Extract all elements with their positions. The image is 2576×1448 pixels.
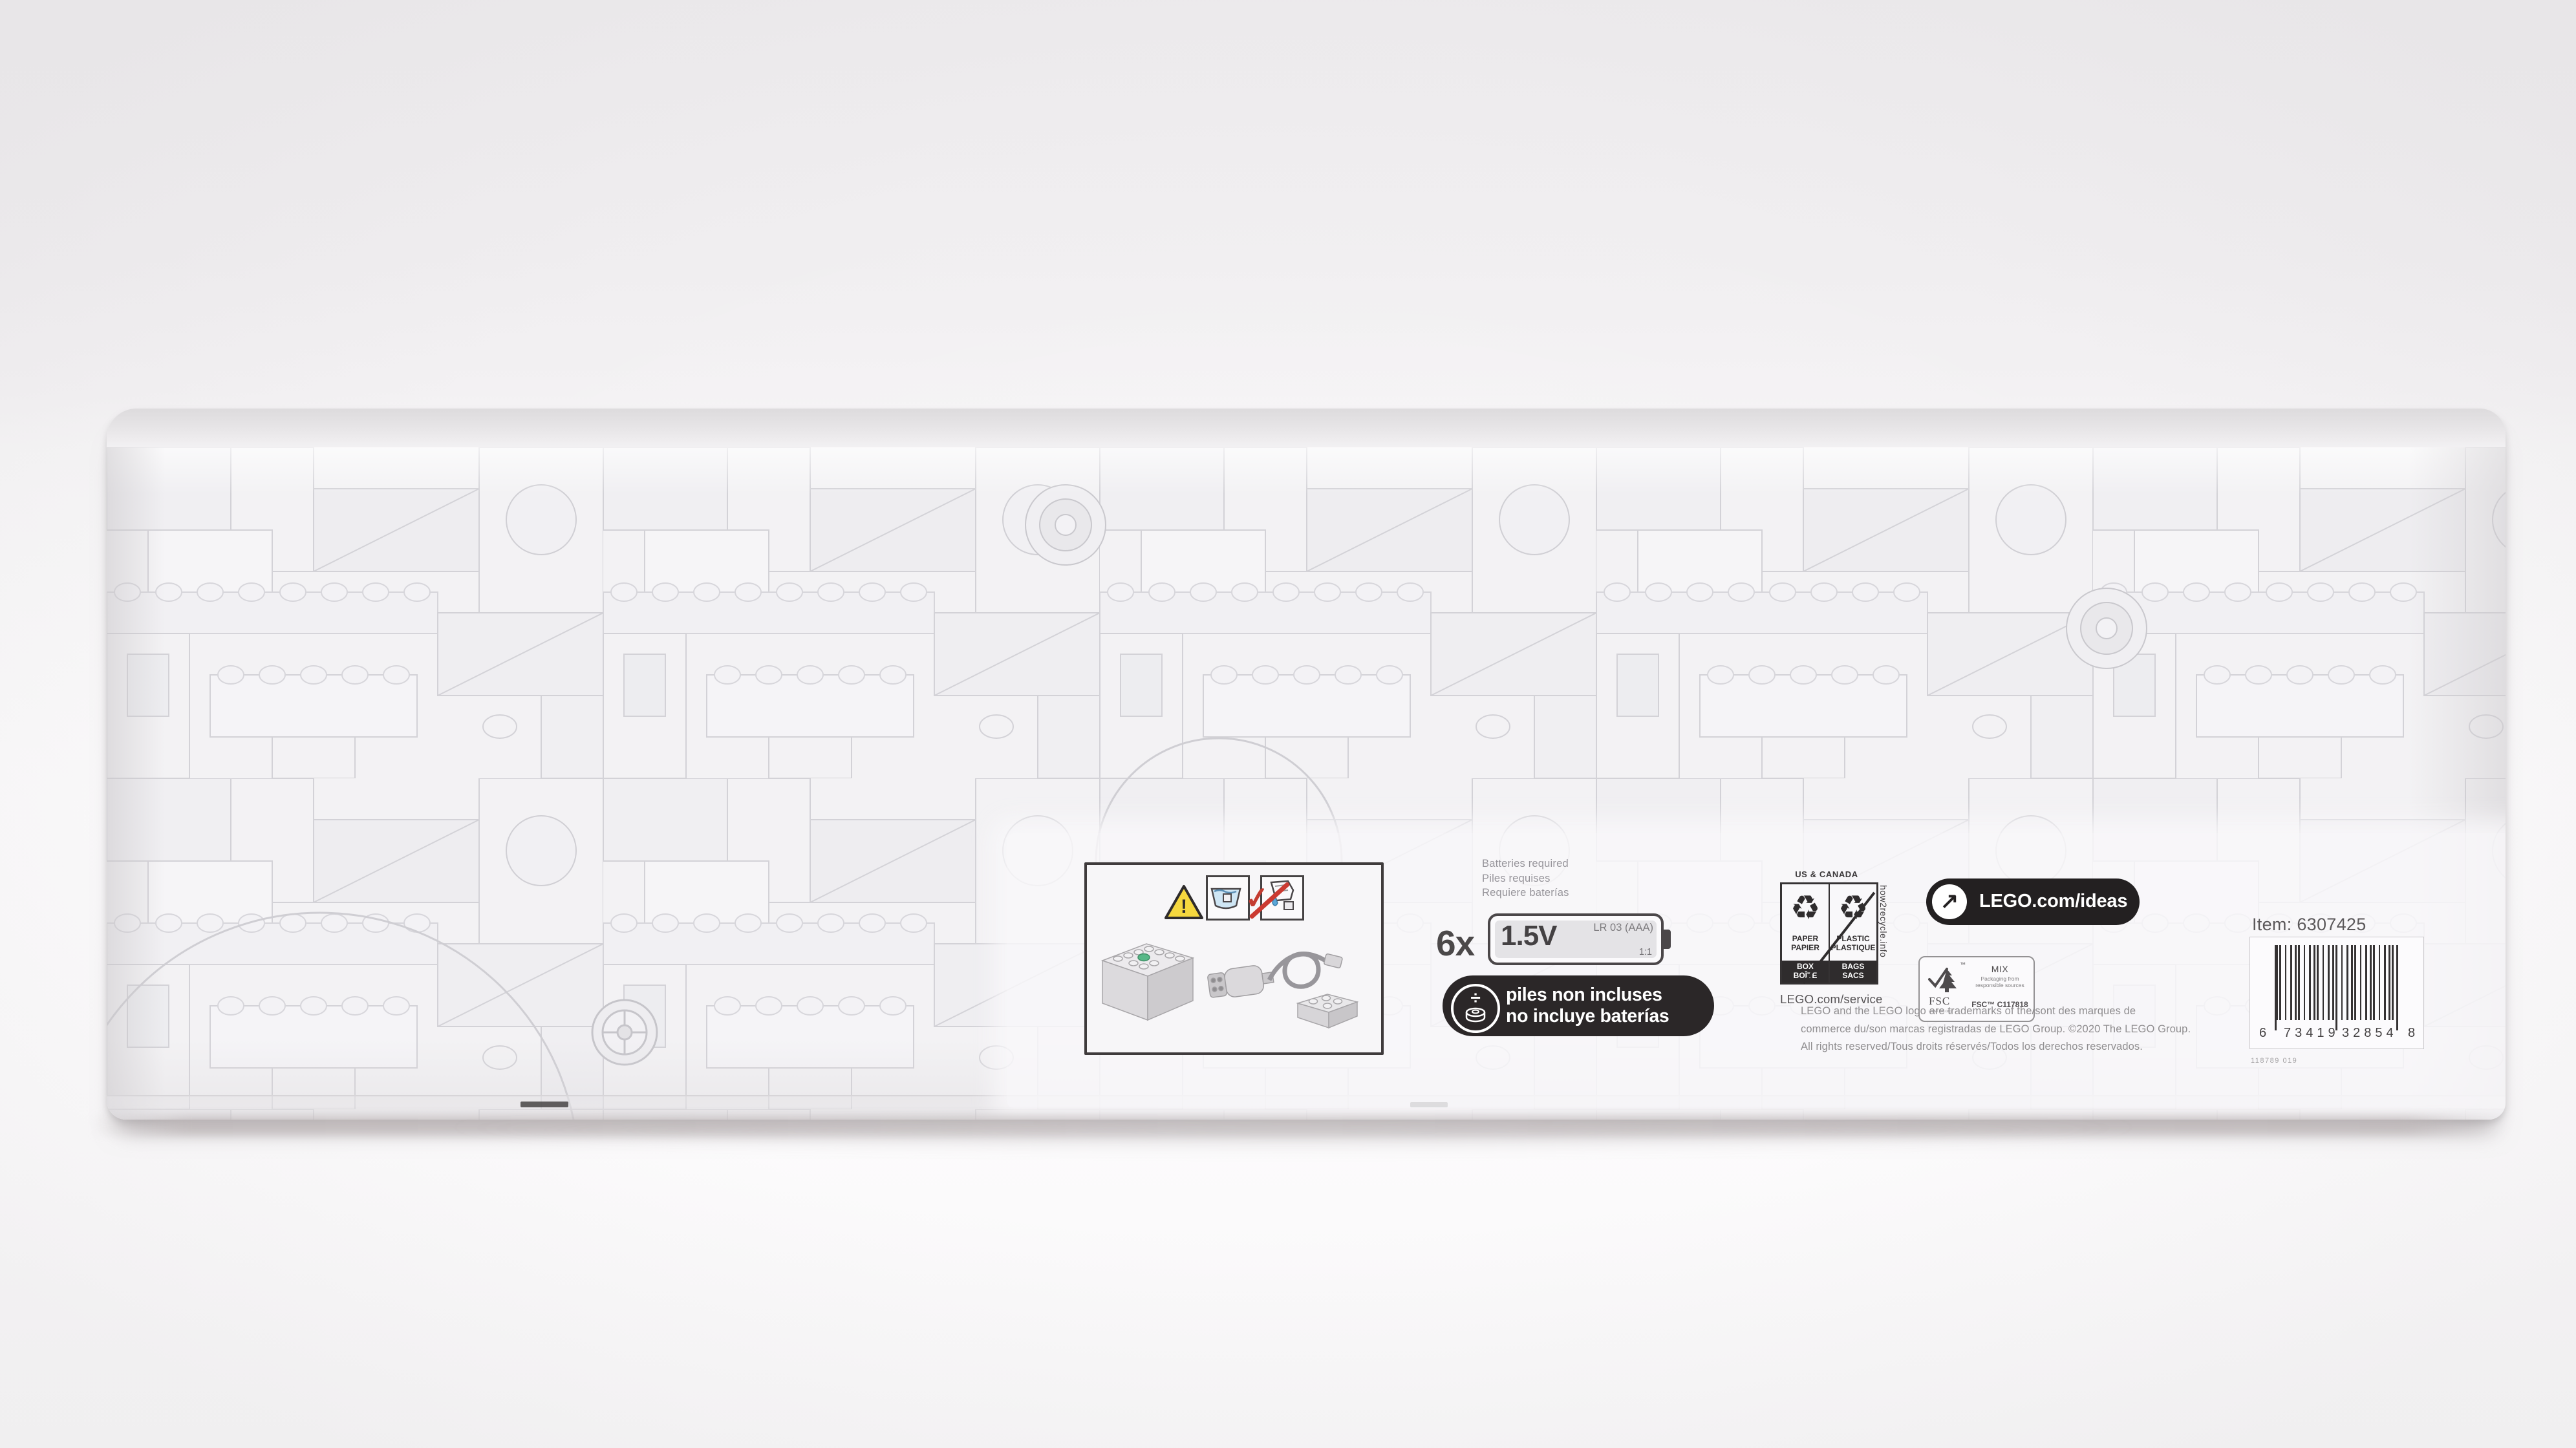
warning-triangle-icon: ! [1163,883,1205,922]
barcode-group1: 73419 [2284,1026,2339,1041]
plastic-item-band: BAGS SACS [1830,961,1876,983]
batteries-not-included-badge: ÷ piles non incluses no incluye baterías [1443,975,1714,1036]
not-included-es: no incluye baterías [1506,1006,1669,1027]
recycle-paper-column: ♻ PAPER PAPIER BOX BOÎTE [1782,884,1830,983]
flap-gap-mark [521,1102,568,1107]
legal-text: LEGO and the LEGO logo are trademarks of… [1801,1003,2191,1056]
barcode-guard [2335,945,2337,1030]
battery-quantity: 6x [1436,922,1474,964]
recycle-region-label: US & CANADA [1768,869,1885,879]
battery-scale-ratio: 1:1 [1639,947,1652,957]
warning-contents-box: ! ✓ [1084,862,1384,1055]
batteries-required-text: Batteries required Piles requises Requie… [1482,857,1569,900]
batteries-required-es: Requiere baterías [1482,886,1569,900]
battery-type: LR 03 (AAA) [1593,922,1653,934]
divide-glyph: ÷ [1454,988,1497,1008]
legal-line: LEGO and the LEGO logo are trademarks of… [1801,1003,2191,1021]
battery-diagram: 1.5V LR 03 (AAA) 1:1 [1488,913,1664,965]
fsc-grade-block: MIX Packaging from responsible sources [1969,964,2031,988]
lego-ideas-url: LEGO.com/ideas [1979,891,2127,912]
fsc-grade: MIX [1969,964,2031,974]
barcode-guard [2275,945,2277,1030]
barcode-guard [2396,945,2398,1030]
how2recycle-url: how2recycle.info [1878,885,1889,957]
print-run-code: 118789 019 [2251,1057,2297,1065]
wheel-vent-detail [592,1000,657,1065]
battery-not-included-icon: ÷ [1451,984,1500,1033]
box-front-face: ! ✓ [107,447,2506,1120]
how2recycle-label: ♻ PAPER PAPIER BOX BOÎTE ♻ PLAS [1780,882,1878,985]
barcode-trail-digit: 8 [2408,1026,2415,1041]
battery-terminal [1663,930,1671,949]
product-photo: ! ✓ [0,0,2576,1448]
powered-up-components [1091,927,1375,1034]
box-top-face [107,409,2506,448]
paper-material-label: PAPER PAPIER [1782,935,1829,952]
batteries-not-included-text: piles non incluses no incluye baterías [1506,985,1669,1027]
fsc-tm-mark: ™ [1960,961,1966,968]
upc-barcode: 6 73419 32854 8 [2249,937,2424,1049]
warning-pictograms: ! ✓ [1163,875,1318,923]
red-check-icon: ✓ [1243,879,1271,917]
fsc-tagline: Packaging from responsible sources [1969,976,2031,988]
fsc-tree-icon [1927,963,1961,995]
battery-cell-icon [1464,1007,1487,1024]
recycle-icon: ♻ [1782,884,1829,935]
recycle-icon: ♻ [1830,884,1876,935]
floor-soft-shadow [39,1125,2548,1202]
legal-line: commerce du/son marcas registradas de LE… [1801,1021,2191,1039]
barcode-group2: 32854 [2342,1026,2398,1041]
barcode-lead-digit: 6 [2259,1026,2266,1041]
batteries-required-en: Batteries required [1482,857,1569,871]
svg-text:!: ! [1181,896,1187,917]
not-included-fr: piles non incluses [1506,985,1669,1006]
lego-ideas-badge: ↗ LEGO.com/ideas [1926,878,2140,925]
arrow-circle-icon: ↗ [1932,884,1967,919]
lego-box: ! ✓ [107,409,2506,1120]
legal-line: All rights reserved/Tous droits réservés… [1801,1038,2191,1056]
arrow-up-right-icon: ↗ [1940,889,1959,913]
batteries-required-fr: Piles requises [1482,871,1569,886]
info-panel: ! ✓ [1007,833,2506,1108]
battery-voltage: 1.5V [1501,920,1557,952]
item-number: Item: 6307425 [2252,915,2367,935]
